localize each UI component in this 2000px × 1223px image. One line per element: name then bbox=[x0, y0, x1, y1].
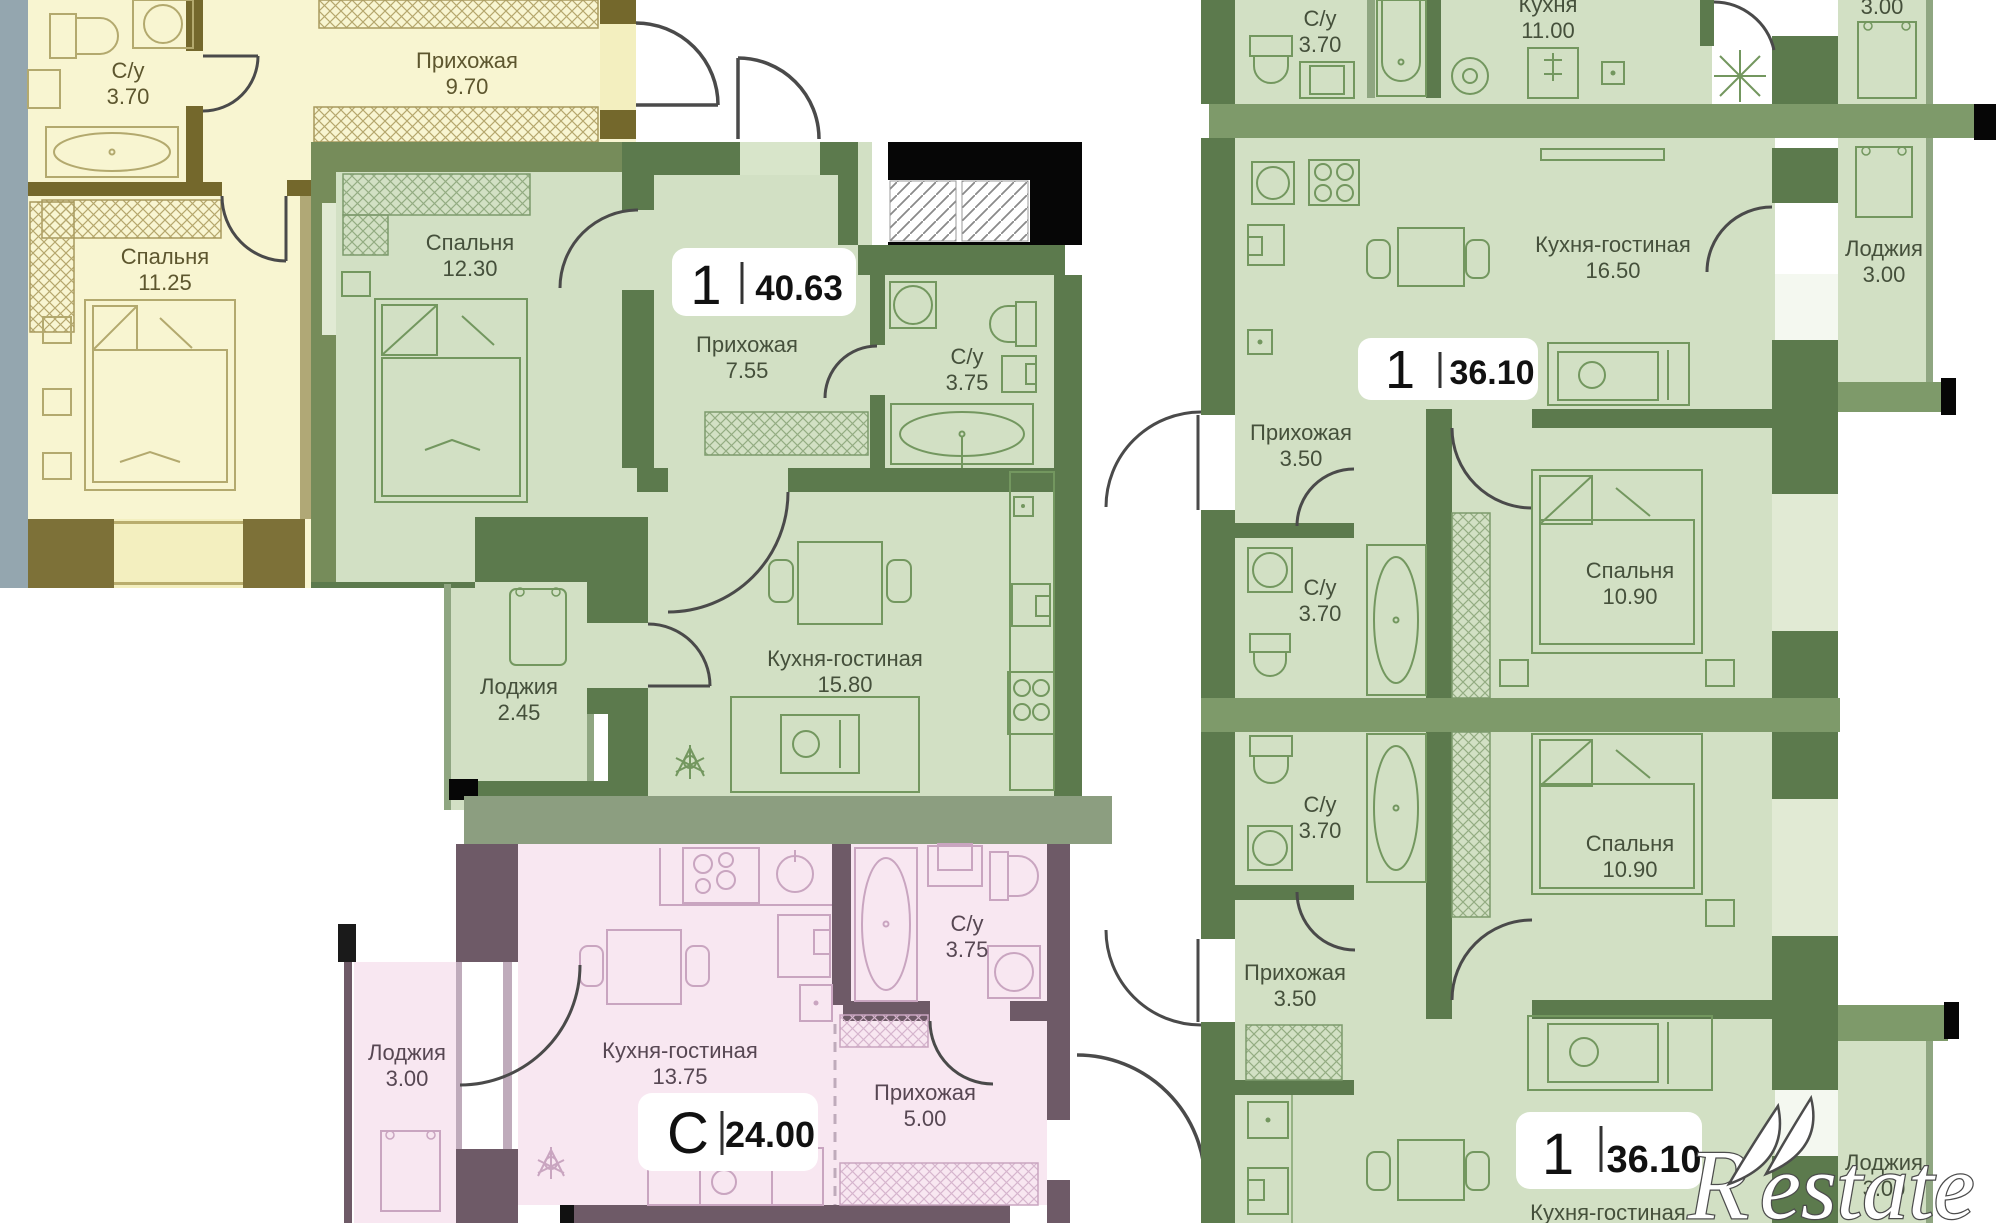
svg-text:Кухня-гостиная: Кухня-гостиная bbox=[602, 1038, 758, 1063]
svg-text:9.70: 9.70 bbox=[446, 74, 489, 99]
svg-text:1: 1 bbox=[690, 253, 721, 316]
svg-text:3.70: 3.70 bbox=[107, 84, 150, 109]
svg-text:С/у: С/у bbox=[1304, 575, 1337, 600]
svg-text:3.70: 3.70 bbox=[1299, 32, 1342, 57]
svg-text:Лоджия: Лоджия bbox=[480, 674, 558, 699]
svg-text:7.55: 7.55 bbox=[726, 358, 769, 383]
svg-text:Прихожая: Прихожая bbox=[874, 1080, 976, 1105]
svg-text:Спальня: Спальня bbox=[1586, 831, 1674, 856]
svg-text:1: 1 bbox=[1542, 1122, 1574, 1187]
svg-text:13.75: 13.75 bbox=[652, 1064, 707, 1089]
svg-text:3.00: 3.00 bbox=[386, 1066, 429, 1091]
svg-text:Кухня-гостиная: Кухня-гостиная bbox=[1535, 232, 1691, 257]
svg-text:3.70: 3.70 bbox=[1299, 601, 1342, 626]
svg-text:Лоджия: Лоджия bbox=[368, 1040, 446, 1065]
svg-text:Кухня-гостиная: Кухня-гостиная bbox=[1530, 1200, 1686, 1223]
svg-text:24.00: 24.00 bbox=[725, 1114, 815, 1155]
svg-text:16.50: 16.50 bbox=[1585, 258, 1640, 283]
svg-text:3.75: 3.75 bbox=[946, 937, 989, 962]
svg-text:С: С bbox=[667, 1101, 709, 1166]
svg-text:Кухня-гостиная: Кухня-гостиная bbox=[767, 646, 923, 671]
svg-text:Прихожая: Прихожая bbox=[696, 332, 798, 357]
svg-text:3.50: 3.50 bbox=[1274, 986, 1317, 1011]
svg-text:С/у: С/у bbox=[1304, 6, 1337, 31]
svg-text:3.70: 3.70 bbox=[1299, 818, 1342, 843]
svg-text:Спальня: Спальня bbox=[121, 244, 209, 269]
svg-text:10.90: 10.90 bbox=[1602, 857, 1657, 882]
svg-text:С/у: С/у bbox=[112, 58, 145, 83]
svg-text:15.80: 15.80 bbox=[817, 672, 872, 697]
svg-text:Кухня: Кухня bbox=[1519, 0, 1578, 17]
svg-text:Спальня: Спальня bbox=[426, 230, 514, 255]
svg-text:С/у: С/у bbox=[1304, 792, 1337, 817]
svg-text:11.25: 11.25 bbox=[138, 270, 191, 295]
svg-text:40.63: 40.63 bbox=[755, 269, 843, 308]
svg-text:3.00: 3.00 bbox=[1861, 0, 1904, 19]
svg-text:С/у: С/у bbox=[951, 911, 984, 936]
svg-text:12.30: 12.30 bbox=[442, 256, 497, 281]
svg-text:2.45: 2.45 bbox=[498, 700, 541, 725]
svg-text:3.50: 3.50 bbox=[1280, 446, 1323, 471]
svg-text:1: 1 bbox=[1385, 340, 1415, 400]
svg-text:Прихожая: Прихожая bbox=[1250, 420, 1352, 445]
svg-text:Прихожая: Прихожая bbox=[1244, 960, 1346, 985]
svg-text:5.00: 5.00 bbox=[904, 1106, 947, 1131]
svg-text:Прихожая: Прихожая bbox=[416, 48, 518, 73]
svg-text:36.10: 36.10 bbox=[1449, 354, 1534, 392]
svg-text:3.75: 3.75 bbox=[946, 370, 989, 395]
svg-text:11.00: 11.00 bbox=[1521, 18, 1574, 43]
svg-text:3.00: 3.00 bbox=[1863, 262, 1906, 287]
svg-text:10.90: 10.90 bbox=[1602, 584, 1657, 609]
svg-text:С/у: С/у bbox=[951, 344, 984, 369]
svg-text:Спальня: Спальня bbox=[1586, 558, 1674, 583]
svg-text:Лоджия: Лоджия bbox=[1845, 236, 1923, 261]
